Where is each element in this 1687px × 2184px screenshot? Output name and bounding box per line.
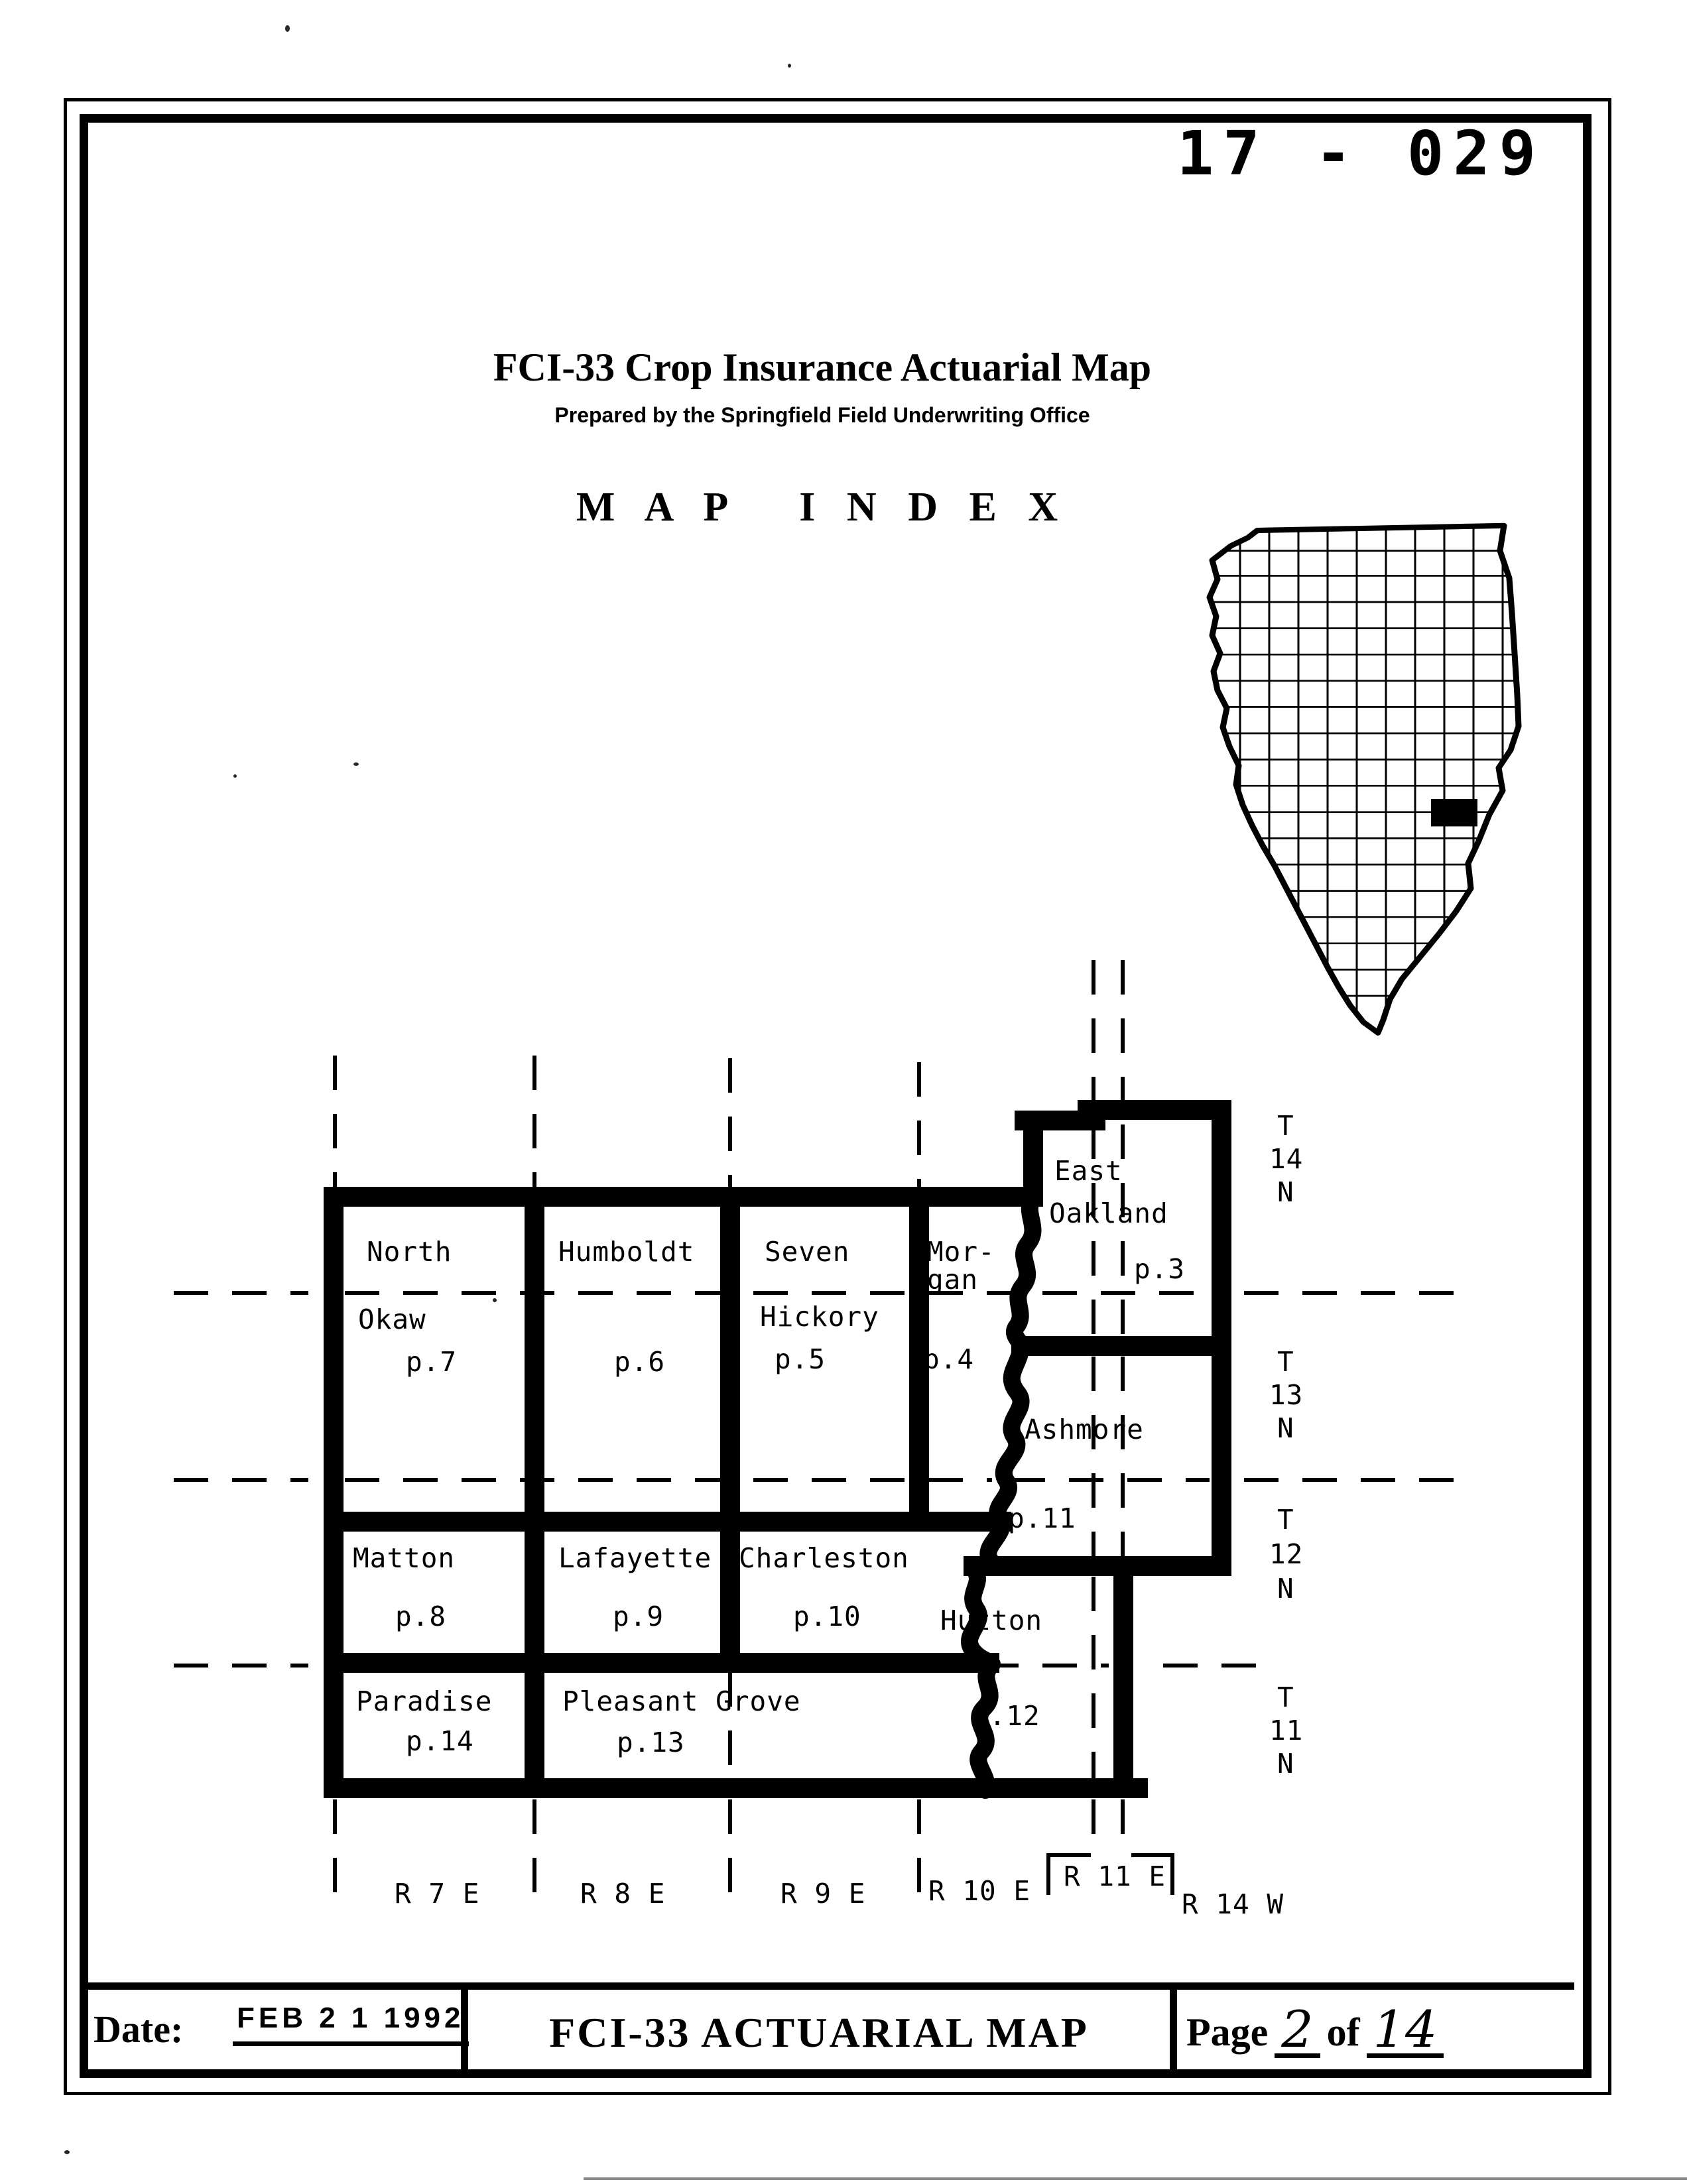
label-r7e: R 7 E <box>395 1878 479 1910</box>
range-column-labels: R 7 E R 8 E R 9 E R 10 E R 11 E R 14 W <box>395 1860 1284 1920</box>
cell-matton-line1: Matton <box>353 1542 455 1574</box>
cell-matton-page: p.8 <box>395 1601 446 1632</box>
label-t11n-l1: T <box>1277 1681 1294 1713</box>
cell-lafayette-page: p.9 <box>613 1601 664 1632</box>
scan-speck <box>464 1522 468 1526</box>
label-r9e: R 9 E <box>781 1878 865 1910</box>
cell-east-oakland-line2: Oakland <box>1049 1197 1168 1229</box>
cell-seven-hickory-page: p.5 <box>775 1343 826 1375</box>
cell-humboldt-page: p.6 <box>614 1346 665 1378</box>
label-t11n-l2: 11 <box>1269 1715 1303 1746</box>
label-r14w: R 14 W <box>1182 1888 1284 1920</box>
label-t13n-l3: N <box>1277 1412 1294 1444</box>
scan-speck <box>285 25 290 32</box>
cell-hutton-line1: Hutton <box>940 1605 1042 1636</box>
date-label: Date: <box>94 2007 183 2051</box>
scan-speck <box>353 762 359 766</box>
cell-hutton-page: p.12 <box>972 1700 1040 1732</box>
cell-east-oakland-page: p.3 <box>1134 1253 1185 1285</box>
scan-edge-artifact <box>584 2177 1687 2180</box>
map-index-graphic: North Okaw p.7 Humboldt p.6 Seven Hickor… <box>0 0 1687 2184</box>
cell-pleasant-grove-page: p.13 <box>617 1727 685 1758</box>
highlighted-county <box>1431 799 1477 826</box>
date-stamp: FEB 2 1 1992 <box>233 2002 469 2046</box>
footer-date-section: Date: FEB 2 1 1992 <box>88 1990 461 2075</box>
cell-morgan-line2: gan <box>927 1264 978 1296</box>
cell-seven-hickory-line2: Hickory <box>760 1301 879 1333</box>
label-t11n-l3: N <box>1277 1748 1294 1780</box>
label-t14n-l3: N <box>1277 1176 1294 1208</box>
scanned-document-page: 17 - 029 FCI-33 Crop Insurance Actuarial… <box>0 0 1687 2184</box>
of-label: of <box>1327 2010 1360 2055</box>
cell-charleston-line1: Charleston <box>739 1542 909 1574</box>
range-township-dashed-lines <box>174 960 1462 1912</box>
label-t12n-l3: N <box>1277 1573 1294 1605</box>
cell-seven-hickory-line1: Seven <box>765 1236 849 1268</box>
page-number: 2 <box>1275 2007 1320 2058</box>
cell-north-okaw-page: p.7 <box>406 1346 457 1378</box>
footer-page-section: Page 2 of 14 <box>1177 1990 1574 2075</box>
footer-bar: Date: FEB 2 1 1992 FCI-33 ACTUARIAL MAP … <box>88 1982 1574 2075</box>
cell-morgan-line1: Mor- <box>927 1236 995 1268</box>
cell-north-okaw-line1: North <box>367 1236 452 1268</box>
cell-ashmore-line1: Ashmore <box>1025 1414 1144 1445</box>
label-t12n-l2: 12 <box>1269 1538 1303 1570</box>
footer-map-title: FCI-33 ACTUARIAL MAP <box>549 2008 1089 2057</box>
cell-morgan-page: p.4 <box>923 1343 974 1375</box>
label-t12n-l1: T <box>1277 1504 1294 1536</box>
scan-speck <box>233 774 237 778</box>
township-row-labels: T 14 N T 13 N T 12 N T 11 N <box>1269 1110 1303 1780</box>
scan-speck <box>493 1298 497 1302</box>
illinois-state-map <box>1192 526 1524 1033</box>
cell-charleston-page: p.10 <box>793 1601 861 1632</box>
label-t14n-l2: 14 <box>1269 1143 1303 1175</box>
cell-east-oakland-line1: East <box>1054 1155 1123 1187</box>
cell-paradise-line1: Paradise <box>356 1685 492 1717</box>
scan-speck <box>64 2150 70 2154</box>
label-t13n-l2: 13 <box>1269 1379 1303 1411</box>
cell-pleasant-grove-line1: Pleasant Grove <box>562 1685 801 1717</box>
footer-title-section: FCI-33 ACTUARIAL MAP <box>461 1990 1177 2075</box>
cell-paradise-page: p.14 <box>406 1725 474 1757</box>
cell-humboldt-line1: Humboldt <box>558 1236 694 1268</box>
label-t14n-l1: T <box>1277 1110 1294 1142</box>
page-label: Page <box>1186 2010 1268 2055</box>
label-r10e: R 10 E <box>928 1875 1031 1907</box>
cell-ashmore-page: p.11 <box>1008 1502 1076 1534</box>
label-r11e: R 11 E <box>1064 1860 1166 1892</box>
county-grid-lines <box>1192 526 1524 1033</box>
cell-north-okaw-line2: Okaw <box>358 1304 426 1335</box>
label-r8e: R 8 E <box>580 1878 665 1910</box>
cell-lafayette-line1: Lafayette <box>558 1542 712 1574</box>
scan-speck <box>788 64 791 68</box>
label-t13n-l1: T <box>1277 1346 1294 1378</box>
page-total: 14 <box>1367 2007 1444 2058</box>
